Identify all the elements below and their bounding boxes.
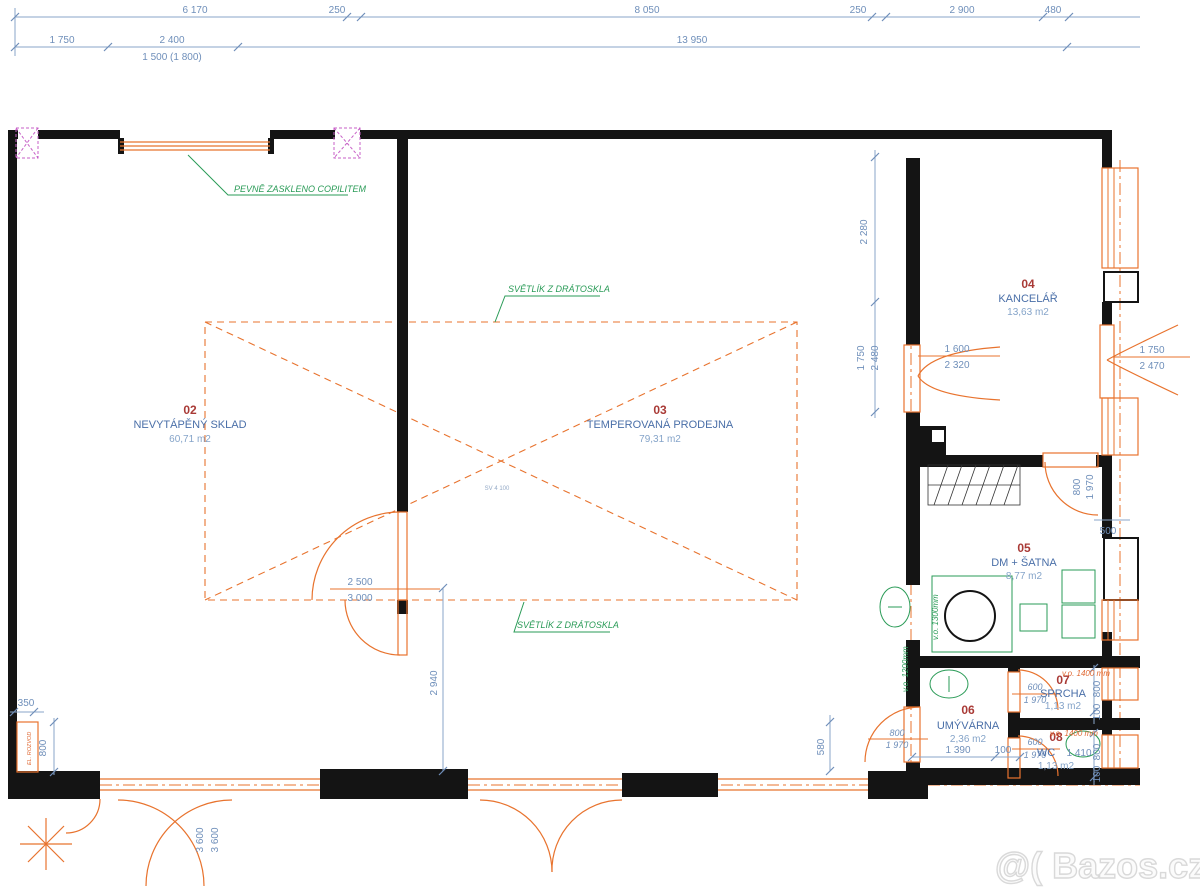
room-04-number: 04 (1021, 277, 1035, 291)
room-07-name: SPRCHA (1040, 688, 1087, 700)
room-08-name: WC (1037, 747, 1055, 759)
floor-plan-page: 6 170 250 8 050 250 2 900 480 1 750 2 40… (0, 0, 1200, 891)
dim-wc-1410: 1 410 (1066, 748, 1091, 759)
dim-door-2470: 2 470 (1139, 361, 1164, 372)
dim-sv-4100: SV 4 100 (485, 486, 510, 492)
dim-top-13950: 13 950 (677, 35, 708, 46)
dim-door45-1970: 1 970 (1085, 474, 1096, 499)
room-03-number: 03 (653, 403, 667, 417)
dim-2280: 2 280 (859, 219, 870, 244)
dim-top-8050: 8 050 (634, 5, 659, 16)
room-02-name: NEVYTÁPĚNÝ SKLAD (133, 418, 246, 431)
dim-100a: 100 (995, 745, 1012, 756)
dim-door06-1970: 1 970 (886, 740, 909, 750)
note-vo-1300: v.o. 1300mm (931, 594, 940, 640)
dim-07-800: 800 (1092, 680, 1103, 697)
dim-door08-600: 600 (1027, 737, 1042, 747)
room-05-name: DM + ŠATNA (991, 556, 1057, 569)
dim-08-800: 800 (1092, 743, 1103, 760)
dim-top-2900: 2 900 (949, 5, 974, 16)
dim-top-6170: 6 170 (182, 5, 207, 16)
skylight-outline (205, 322, 797, 600)
note-vo-1400b: v.o. 1400 mm (1050, 729, 1098, 738)
note-el-rozvod: EL. ROZVOD (27, 732, 33, 765)
room-04-name: KANCELÁŘ (998, 292, 1057, 305)
note-skylight-top: SVĚTLÍK Z DRÁTOSKLA (508, 284, 610, 294)
dim-door-3000: 3 000 (347, 593, 372, 604)
top-glazing-band (118, 138, 274, 154)
dim-3600b: 3 600 (210, 827, 221, 852)
room-08-area: 1,13 m2 (1038, 761, 1075, 772)
dim-500: 500 (1100, 526, 1117, 537)
dim-580: 580 (816, 738, 827, 755)
room-03-name: TEMPEROVANÁ PRODEJNA (587, 418, 734, 431)
room-04-area: 13,63 m2 (1007, 307, 1049, 318)
dim-1390: 1 390 (945, 745, 970, 756)
locker-icon (1062, 605, 1095, 638)
dim-2480: 2 480 (870, 345, 881, 370)
room-05-number: 05 (1017, 541, 1031, 555)
dim-door06-800: 800 (889, 728, 904, 738)
dim-1750-v: 1 750 (856, 345, 867, 370)
note-copilit: PEVNĚ ZASKLENO COPILITEM (234, 184, 367, 194)
walls (8, 130, 1140, 799)
dim-top-2400: 2 400 (159, 35, 184, 46)
room-06-number: 06 (961, 703, 975, 717)
watermark: @( Bazos.cz (995, 845, 1200, 886)
dim-2940: 2 940 (429, 670, 440, 695)
note-vo-1200: v.o. 1200mm (901, 646, 910, 692)
dim-top-1750: 1 750 (49, 35, 74, 46)
dim-08-100: 100 (1092, 765, 1103, 782)
dim-door-2500: 2 500 (347, 577, 372, 588)
dim-door45-800: 800 (1072, 478, 1083, 495)
dim-top-250a: 250 (329, 5, 346, 16)
dim-350: 350 (18, 698, 35, 709)
note-skylight-bottom: SVĚTLÍK Z DRÁTOSKLA (517, 620, 619, 630)
room-03-area: 79,31 m2 (639, 434, 681, 445)
room-06-area: 2,36 m2 (950, 734, 987, 745)
locker-icon (1062, 570, 1095, 603)
dim-07-100: 100 (1092, 703, 1103, 720)
floor-plan-drawing: 6 170 250 8 050 250 2 900 480 1 750 2 40… (0, 0, 1200, 891)
dim-3600a: 3 600 (195, 827, 206, 852)
dim-door-1750: 1 750 (1139, 345, 1164, 356)
room-06-name: UMÝVÁRNA (937, 719, 1000, 732)
dim-top-480: 480 (1045, 5, 1062, 16)
room-02-area: 60,71 m2 (169, 434, 211, 445)
dim-top-250b: 250 (850, 5, 867, 16)
table-icon (945, 591, 995, 641)
dim-door-2320: 2 320 (944, 360, 969, 371)
room-02-number: 02 (183, 403, 197, 417)
dim-top-1500-1800: 1 500 (1 800) (142, 52, 202, 63)
note-vo-1400a: v.o. 1400 mm (1062, 669, 1110, 678)
room-07-area: 1,13 m2 (1045, 701, 1082, 712)
dim-800-left: 800 (38, 739, 49, 756)
chair-icon (1020, 604, 1047, 631)
dim-door-1600: 1 600 (944, 344, 969, 355)
axis-lines (8, 160, 1140, 785)
room-05-area: 8,77 m2 (1006, 571, 1043, 582)
